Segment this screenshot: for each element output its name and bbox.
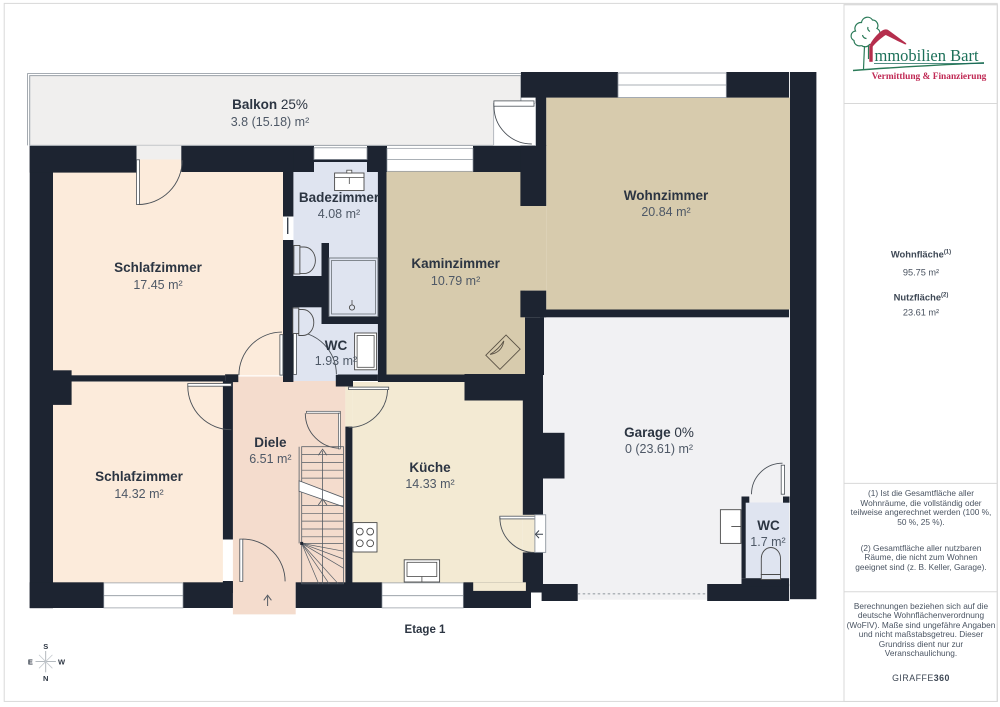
svg-text:1.7 m²: 1.7 m² — [750, 535, 785, 549]
svg-text:20.84 m²: 20.84 m² — [641, 205, 690, 219]
svg-text:Kaminzimmer: Kaminzimmer — [411, 256, 500, 271]
svg-text:Vermittlung & Finanzierung: Vermittlung & Finanzierung — [872, 72, 987, 82]
svg-text:4.08 m²: 4.08 m² — [318, 207, 360, 221]
svg-text:1.93 m²: 1.93 m² — [315, 354, 357, 368]
svg-text:Wohnzimmer: Wohnzimmer — [624, 188, 709, 203]
svg-text:3.8 (15.18) m²: 3.8 (15.18) m² — [231, 115, 310, 129]
svg-text:Nutzfläche(2): Nutzfläche(2) — [894, 292, 949, 303]
svg-text:mmobilien Bart: mmobilien Bart — [875, 46, 979, 65]
svg-text:W: W — [58, 658, 66, 667]
svg-text:95.75 m²: 95.75 m² — [903, 268, 939, 278]
svg-text:N: N — [43, 674, 48, 683]
svg-text:Schlafzimmer: Schlafzimmer — [114, 260, 203, 275]
svg-text:E: E — [28, 658, 33, 667]
svg-text:Diele: Diele — [254, 435, 287, 450]
svg-text:Balkon 25%: Balkon 25% — [232, 97, 308, 112]
svg-text:Badezimmer: Badezimmer — [299, 190, 380, 205]
svg-text:Schlafzimmer: Schlafzimmer — [95, 469, 184, 484]
svg-text:Wohnfläche(1): Wohnfläche(1) — [891, 249, 951, 260]
svg-text:14.33 m²: 14.33 m² — [405, 477, 454, 491]
svg-text:0 (23.61) m²: 0 (23.61) m² — [625, 442, 693, 456]
svg-text:23.61 m²: 23.61 m² — [903, 308, 939, 318]
svg-text:S: S — [43, 642, 48, 651]
svg-text:Küche: Küche — [409, 460, 451, 475]
svg-text:17.45 m²: 17.45 m² — [133, 278, 182, 292]
svg-text:Etage 1: Etage 1 — [405, 624, 447, 636]
svg-text:Garage 0%: Garage 0% — [624, 425, 694, 440]
svg-text:6.51 m²: 6.51 m² — [249, 452, 291, 466]
svg-text:10.79 m²: 10.79 m² — [431, 274, 480, 288]
svg-text:14.32 m²: 14.32 m² — [114, 487, 163, 501]
svg-text:WC: WC — [325, 338, 348, 353]
svg-text:GIRAFFE360: GIRAFFE360 — [892, 673, 950, 683]
svg-text:WC: WC — [757, 518, 780, 533]
